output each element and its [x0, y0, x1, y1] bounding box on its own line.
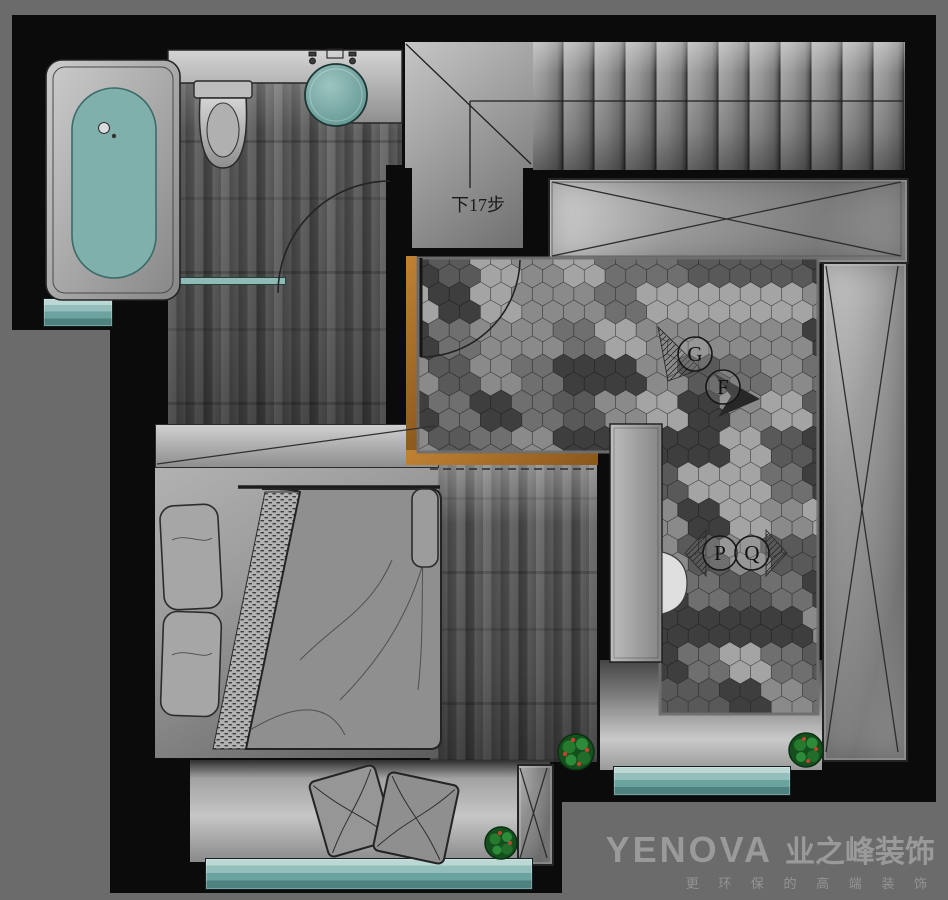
corridor-floor: [600, 660, 822, 770]
glass-partition: [171, 277, 286, 285]
dresser: [155, 424, 439, 468]
brand-logo-latin: YENOVA: [606, 829, 773, 871]
bathroom-floor: [168, 50, 402, 462]
closet-floor: [430, 465, 597, 762]
tall-cabinet: [822, 262, 908, 762]
stair-treads: [533, 42, 905, 170]
brand-logo: YENOVA 业之峰装饰 更 环 保 的 高 端 装 饰: [606, 827, 935, 892]
bedroom-floor: [155, 465, 438, 758]
balcony-window: [205, 858, 533, 890]
brand-logo-row: YENOVA 业之峰装饰: [606, 827, 935, 871]
brand-logo-chinese: 业之峰装饰: [785, 827, 935, 871]
floor-plan-canvas: 下17步: [0, 0, 948, 900]
wardrobe: [548, 178, 909, 264]
balcony-floor: [190, 760, 550, 862]
bathroom-east-wall: [386, 165, 405, 462]
corridor-window: [613, 766, 791, 796]
threshold-west: [406, 256, 417, 458]
exterior-ground-left: [12, 330, 110, 890]
bathroom-window: [43, 298, 113, 327]
brand-tagline: 更 环 保 的 高 端 装 饰: [606, 873, 935, 892]
stair-landing: [405, 42, 533, 248]
threshold-south: [406, 450, 598, 465]
landing-wall-right: [523, 168, 533, 248]
landing-wall-left: [405, 168, 412, 248]
balcony-cabinet: [517, 764, 554, 866]
